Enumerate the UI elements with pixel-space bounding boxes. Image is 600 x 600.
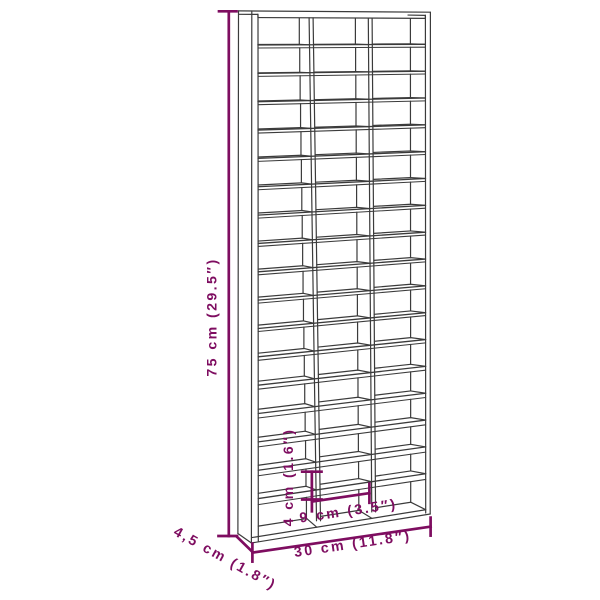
svg-text:4 cm (1.6″): 4 cm (1.6″) — [281, 428, 297, 527]
svg-text:75 cm (29.5″): 75 cm (29.5″) — [205, 257, 221, 376]
